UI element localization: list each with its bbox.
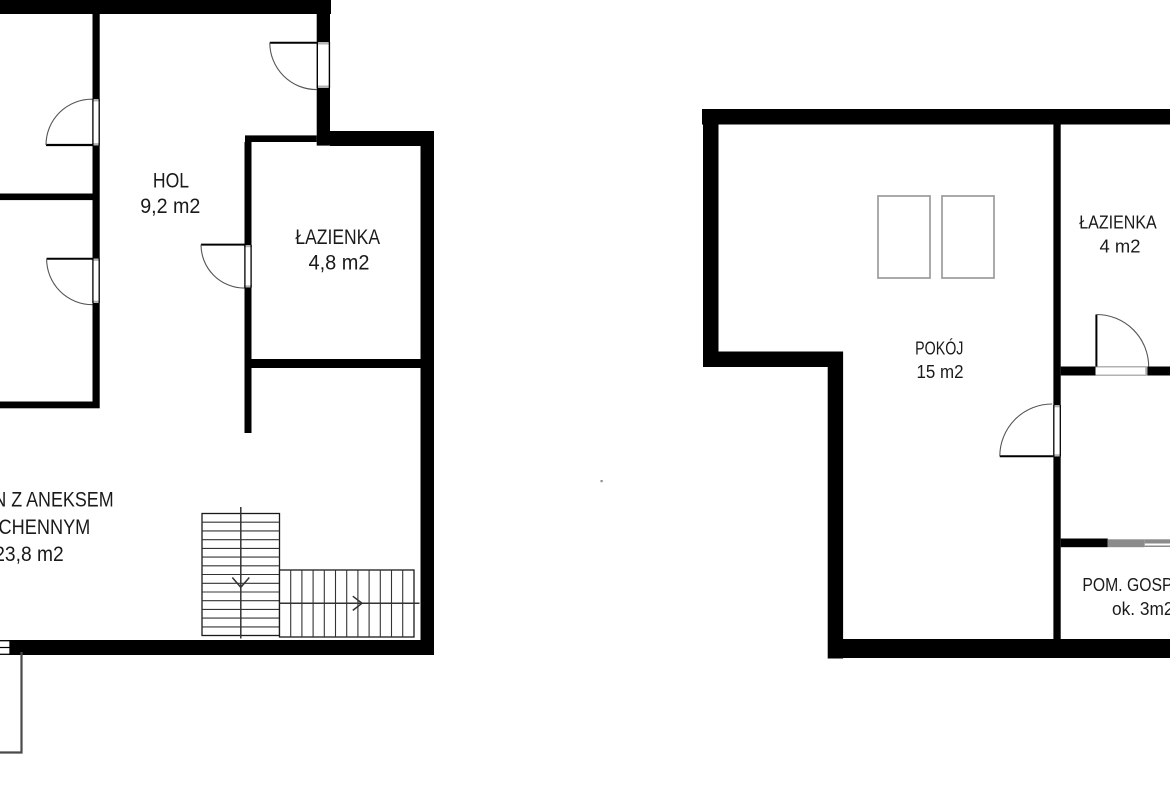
svg-text:POM. GOSPODARCZE: POM. GOSPODARCZE [1082,574,1170,595]
svg-text:9,2 m2: 9,2 m2 [140,194,200,218]
svg-text:HOL: HOL [153,168,189,192]
svg-text:4 m2: 4 m2 [1100,236,1141,257]
svg-text:POKÓJ: POKÓJ [915,338,963,359]
svg-text:23,8 m2: 23,8 m2 [0,542,64,566]
svg-text:KUCHENNYM: KUCHENNYM [0,515,90,539]
svg-text:ŁAZIENKA: ŁAZIENKA [1079,212,1157,233]
svg-text:4,8 m2: 4,8 m2 [309,251,370,275]
svg-text:15 m2: 15 m2 [917,361,964,382]
svg-text:ok. 3m2: ok. 3m2 [1112,598,1170,619]
svg-text:SALON Z ANEKSEM: SALON Z ANEKSEM [0,487,114,511]
svg-text:ŁAZIENKA: ŁAZIENKA [295,225,380,249]
